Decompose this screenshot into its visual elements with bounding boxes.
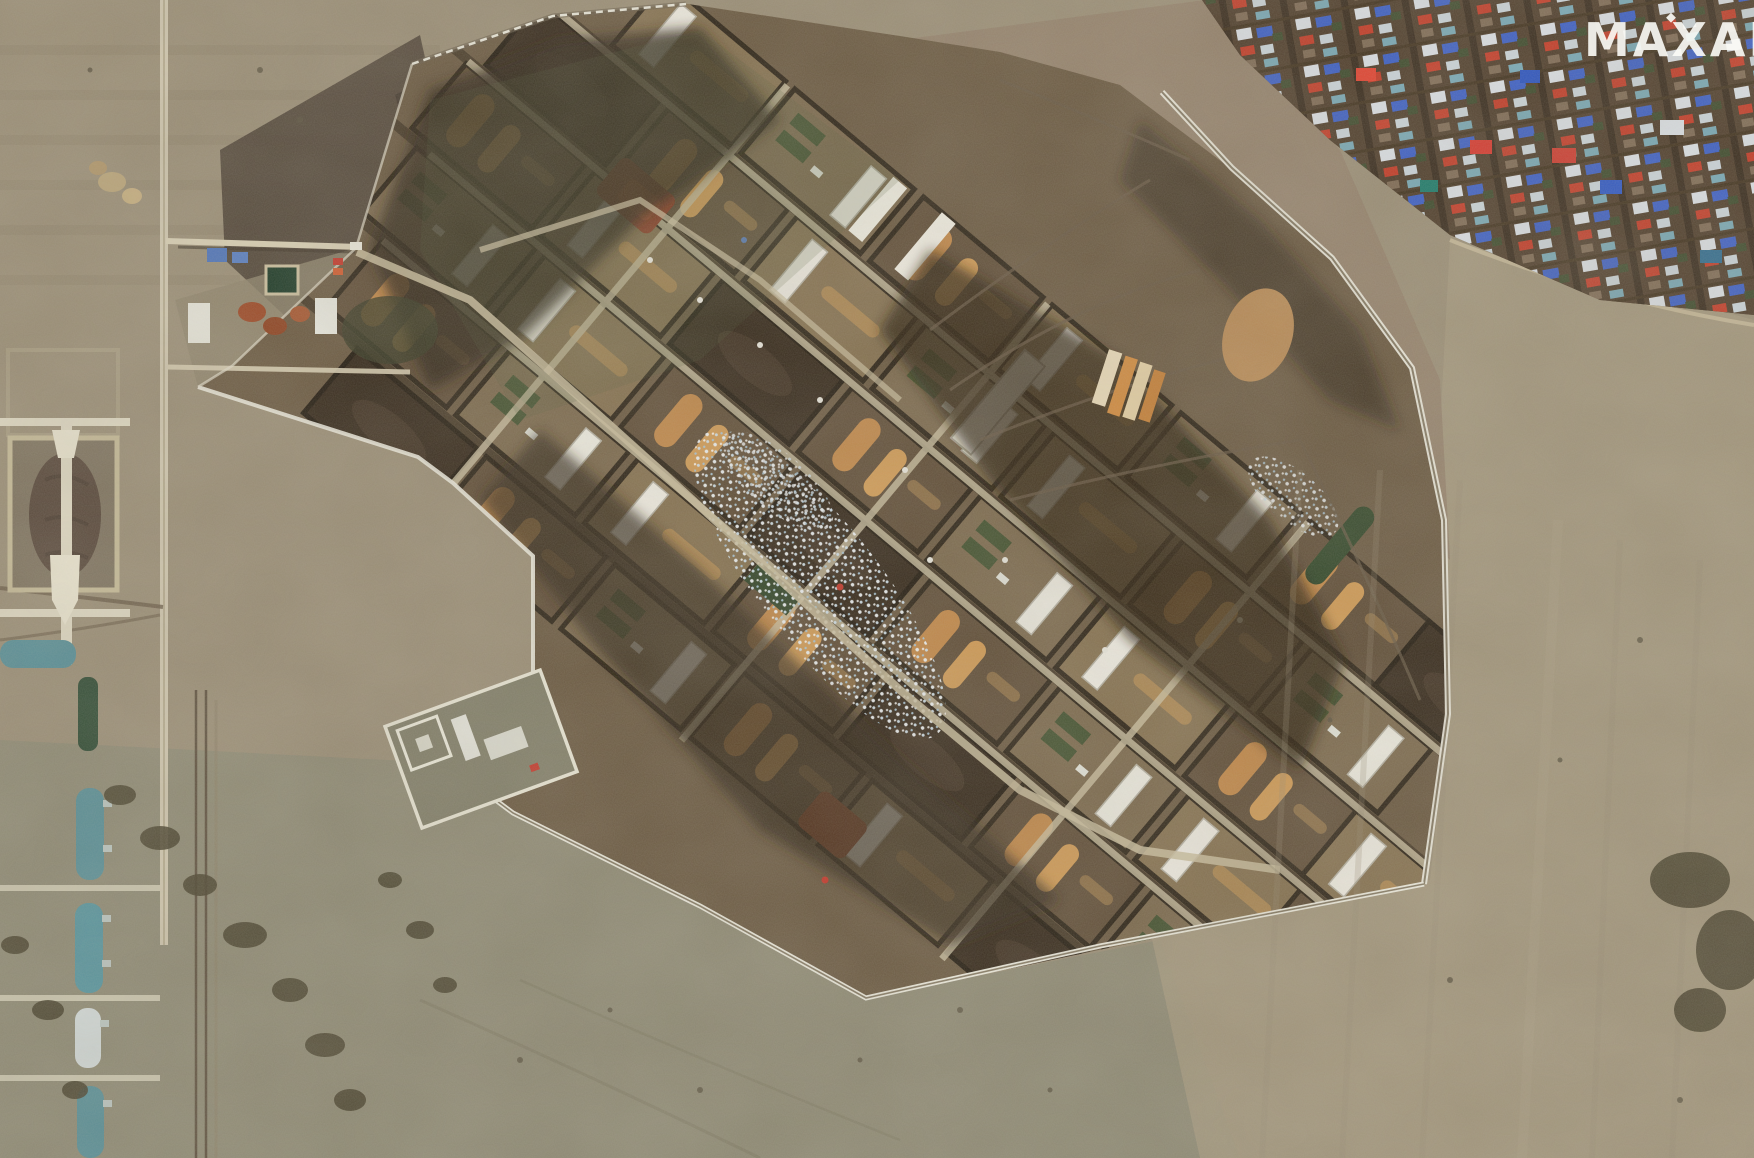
- film-grain: [0, 0, 1754, 1158]
- maxar-watermark: MAXAR: [1584, 13, 1754, 67]
- satellite-canvas: MAXAR: [0, 0, 1754, 1158]
- maxar-logo-text: MAXAR: [1584, 13, 1754, 67]
- satellite-image: MAXAR: [0, 0, 1754, 1158]
